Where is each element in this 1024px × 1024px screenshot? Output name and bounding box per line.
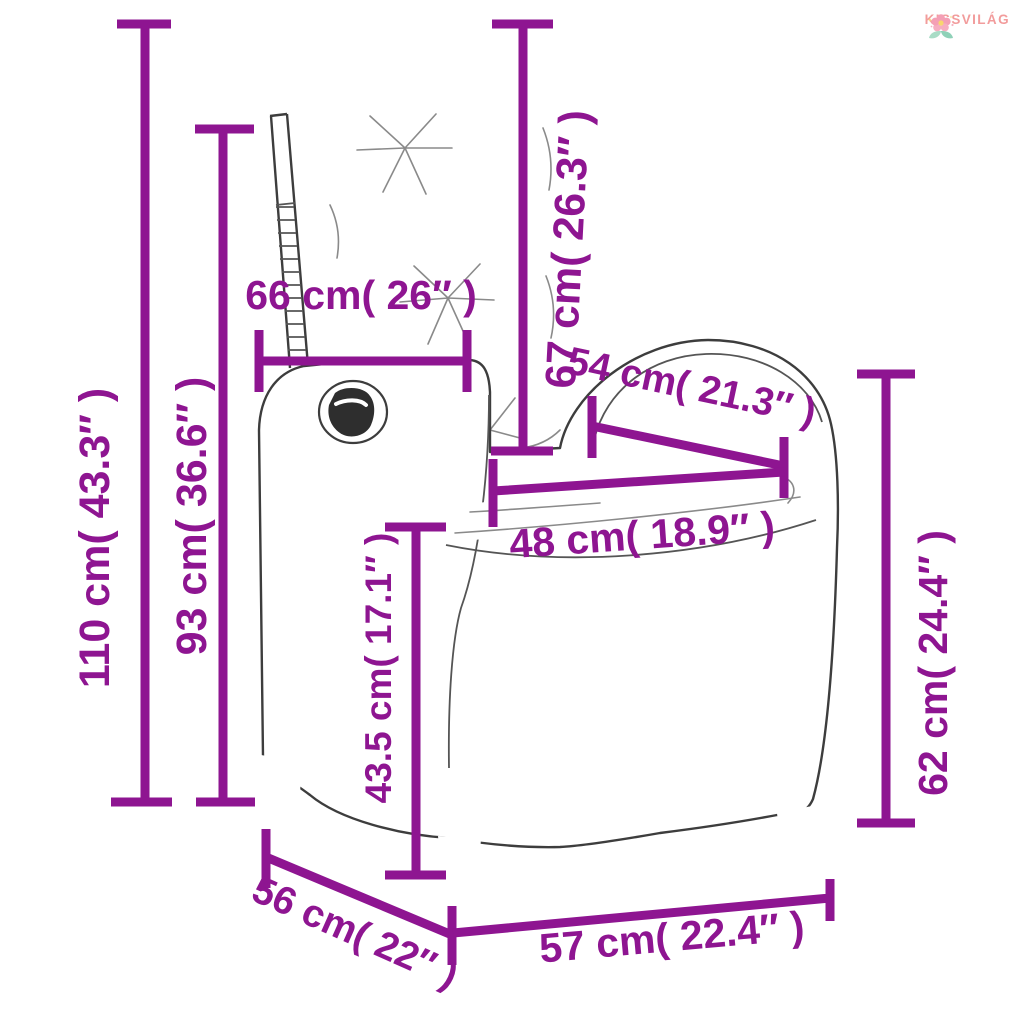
dimension-label: 110 cm( 43.3″ ) — [71, 388, 119, 688]
dimension-label: 62 cm( 24.4″ ) — [910, 530, 956, 796]
dimension-total-height: 110 cm( 43.3″ ) — [71, 20, 172, 804]
back-pole — [270, 114, 308, 368]
dimension-label: 66 cm( 26″ ) — [245, 272, 477, 318]
diagram-canvas: 110 cm( 43.3″ ) 93 cm( 36.6″ ) 66 cm( 26… — [0, 0, 1024, 1024]
chair-leg-front-left — [261, 755, 302, 808]
dimension-label: 56 cm( 22″ ) — [246, 868, 465, 997]
recline-knob — [319, 381, 387, 443]
dimension-line — [111, 20, 172, 804]
dimension-line — [857, 372, 915, 825]
dimension-depth: 56 cm( 22″ ) — [246, 829, 465, 997]
dimension-backrest-height: 93 cm( 36.6″ ) — [168, 127, 255, 804]
dimension-label: 43.5 cm( 17.1″ ) — [358, 533, 399, 804]
dimension-label: 93 cm( 36.6″ ) — [168, 377, 216, 656]
brand-logo: KISSVILÁG — [925, 12, 1010, 27]
dimension-width: 57 cm( 22.4″ ) — [453, 879, 830, 972]
dimension-armrest-height: 62 cm( 24.4″ ) — [857, 372, 956, 825]
flower-icon — [925, 12, 957, 44]
dimension-diagram: 110 cm( 43.3″ ) 93 cm( 36.6″ ) 66 cm( 26… — [0, 0, 1024, 1024]
chair-leg-front-center — [438, 836, 481, 888]
